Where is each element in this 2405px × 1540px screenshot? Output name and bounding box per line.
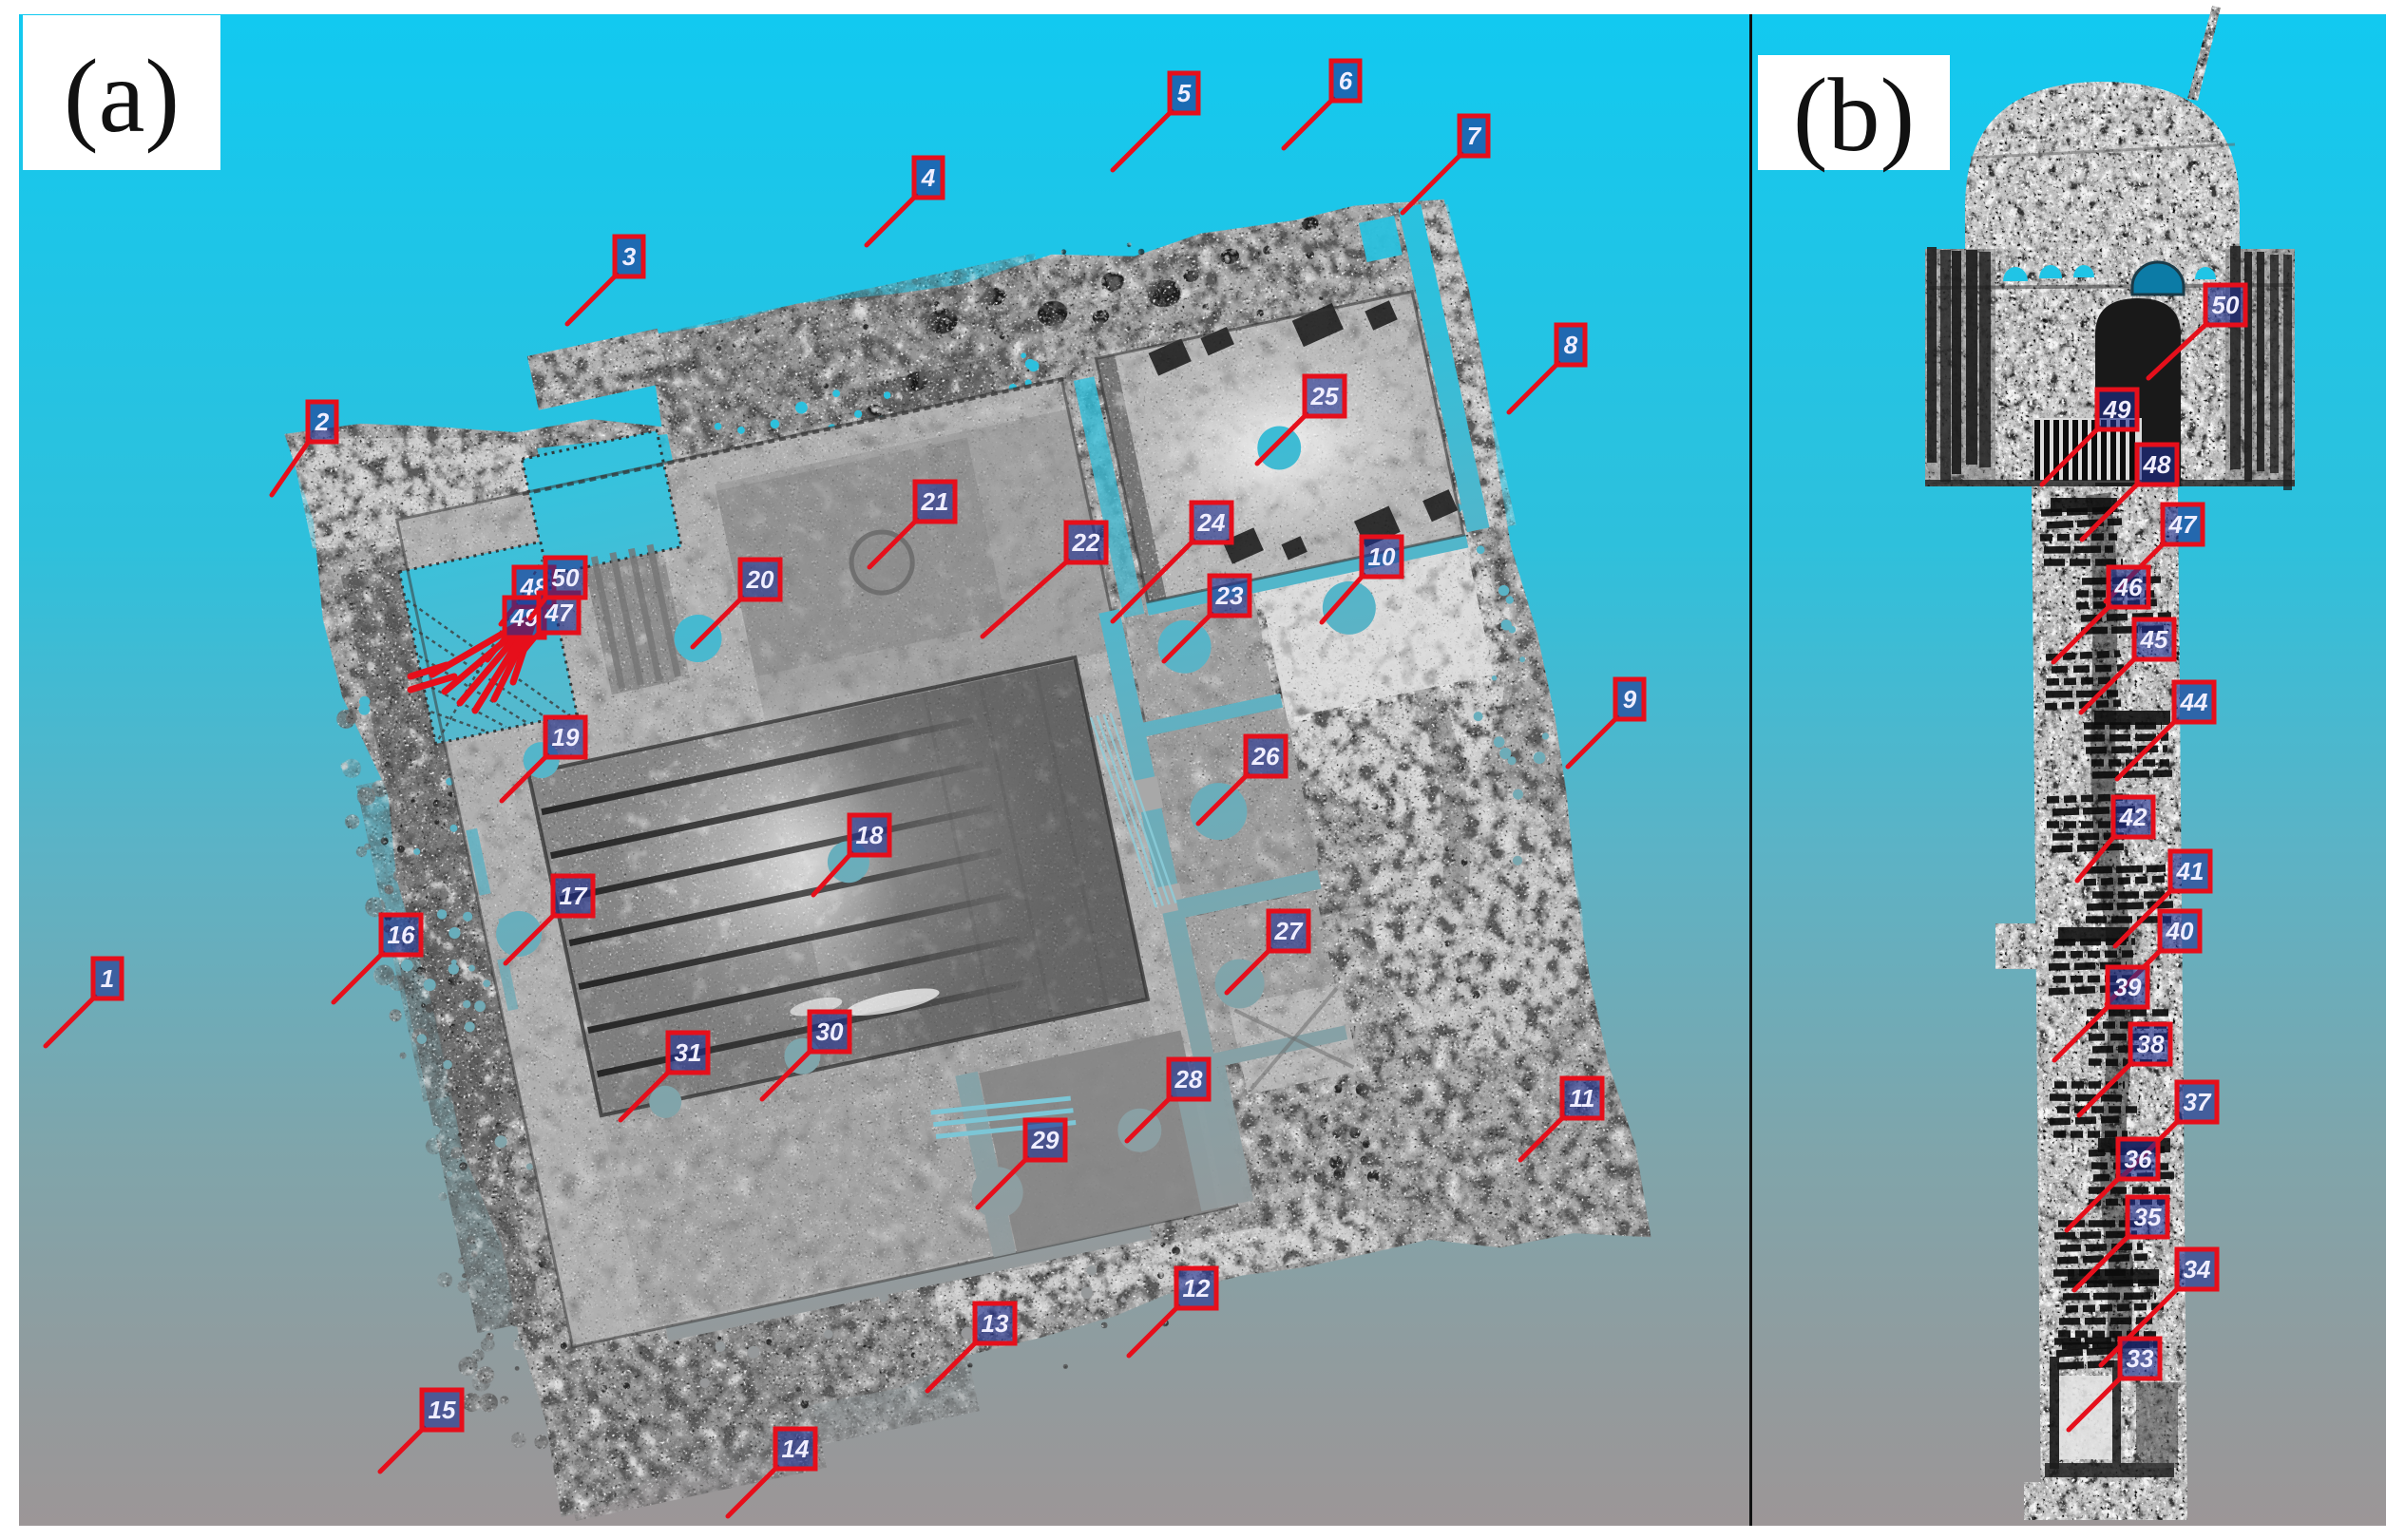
- svg-text:15: 15: [429, 1396, 456, 1424]
- svg-text:47: 47: [544, 599, 574, 627]
- svg-text:36: 36: [2125, 1145, 2152, 1173]
- svg-text:50: 50: [2212, 291, 2240, 319]
- svg-text:46: 46: [2114, 573, 2143, 601]
- svg-text:10: 10: [1368, 542, 1396, 571]
- svg-text:49: 49: [2103, 395, 2131, 424]
- svg-text:47: 47: [2168, 510, 2198, 539]
- svg-text:13: 13: [982, 1309, 1009, 1338]
- svg-text:39: 39: [2114, 973, 2142, 1001]
- svg-text:30: 30: [816, 1017, 844, 1046]
- svg-text:24: 24: [1197, 508, 1226, 537]
- svg-text:22: 22: [1072, 528, 1100, 557]
- svg-text:(b): (b): [1793, 57, 1915, 173]
- svg-text:5: 5: [1177, 79, 1192, 107]
- svg-text:50: 50: [552, 563, 580, 592]
- svg-text:19: 19: [552, 723, 580, 751]
- svg-text:48: 48: [2143, 450, 2171, 479]
- svg-text:(a): (a): [64, 38, 180, 154]
- svg-text:7: 7: [1467, 122, 1482, 150]
- svg-text:40: 40: [2166, 917, 2194, 945]
- svg-text:28: 28: [1174, 1065, 1203, 1093]
- svg-text:38: 38: [2137, 1030, 2165, 1058]
- svg-text:42: 42: [2119, 803, 2147, 831]
- svg-text:6: 6: [1339, 67, 1353, 95]
- svg-text:14: 14: [782, 1435, 810, 1463]
- svg-text:45: 45: [2140, 625, 2168, 654]
- svg-text:18: 18: [856, 821, 884, 849]
- svg-text:1: 1: [101, 964, 114, 993]
- svg-text:49: 49: [510, 603, 539, 632]
- svg-text:35: 35: [2134, 1203, 2162, 1231]
- svg-text:11: 11: [1570, 1084, 1595, 1112]
- svg-text:4: 4: [921, 163, 936, 192]
- svg-text:2: 2: [315, 408, 330, 436]
- svg-text:37: 37: [2184, 1088, 2212, 1116]
- svg-text:29: 29: [1031, 1126, 1059, 1154]
- svg-text:23: 23: [1215, 581, 1244, 610]
- svg-text:27: 27: [1274, 917, 1304, 945]
- svg-text:26: 26: [1251, 742, 1280, 770]
- svg-text:20: 20: [746, 565, 774, 594]
- svg-text:41: 41: [2176, 857, 2205, 885]
- svg-text:9: 9: [1623, 685, 1637, 713]
- svg-text:21: 21: [921, 487, 949, 516]
- svg-text:12: 12: [1183, 1274, 1211, 1302]
- svg-text:17: 17: [560, 882, 588, 910]
- svg-text:8: 8: [1564, 331, 1578, 359]
- svg-text:3: 3: [622, 242, 637, 271]
- svg-text:25: 25: [1310, 382, 1339, 410]
- svg-text:31: 31: [675, 1038, 702, 1067]
- svg-text:16: 16: [388, 921, 415, 949]
- svg-text:33: 33: [2127, 1344, 2154, 1373]
- svg-text:44: 44: [2180, 688, 2208, 716]
- svg-text:34: 34: [2184, 1255, 2211, 1283]
